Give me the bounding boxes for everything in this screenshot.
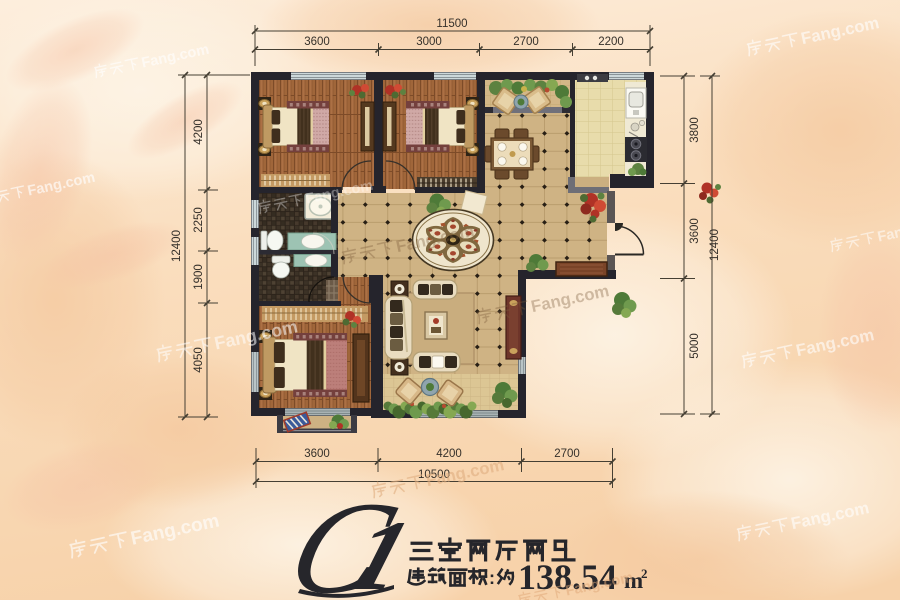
svg-text:4200: 4200 (193, 119, 205, 145)
svg-text:5000: 5000 (689, 333, 701, 359)
svg-text:2200: 2200 (598, 36, 624, 48)
svg-text:3000: 3000 (416, 36, 442, 48)
svg-text:3600: 3600 (304, 36, 330, 48)
svg-text::: : (489, 568, 495, 588)
svg-text:2700: 2700 (554, 448, 580, 460)
svg-text:2250: 2250 (193, 207, 205, 233)
svg-text:2700: 2700 (513, 36, 539, 48)
svg-text:12400: 12400 (709, 229, 721, 261)
svg-text:12400: 12400 (171, 230, 183, 262)
svg-text:11500: 11500 (436, 18, 467, 30)
svg-text:4050: 4050 (193, 347, 205, 373)
svg-text:3600: 3600 (689, 218, 701, 244)
svg-text:4200: 4200 (436, 448, 462, 460)
svg-text:1900: 1900 (193, 264, 205, 290)
svg-text:3600: 3600 (304, 448, 330, 460)
svg-text:2: 2 (641, 566, 648, 581)
svg-text:3800: 3800 (689, 117, 701, 143)
